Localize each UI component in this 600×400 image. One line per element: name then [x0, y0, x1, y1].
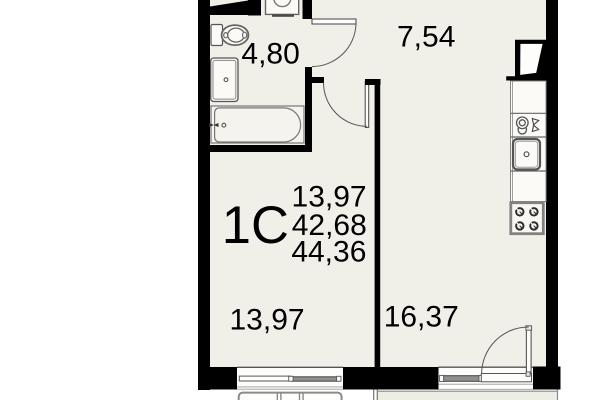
- svg-text:1C: 1C: [222, 196, 289, 255]
- svg-text:4,80: 4,80: [241, 37, 299, 70]
- svg-text:7,54: 7,54: [397, 20, 455, 53]
- svg-text:44,36: 44,36: [291, 236, 366, 269]
- svg-text:16,37: 16,37: [384, 301, 459, 334]
- svg-text:13,97: 13,97: [230, 303, 305, 336]
